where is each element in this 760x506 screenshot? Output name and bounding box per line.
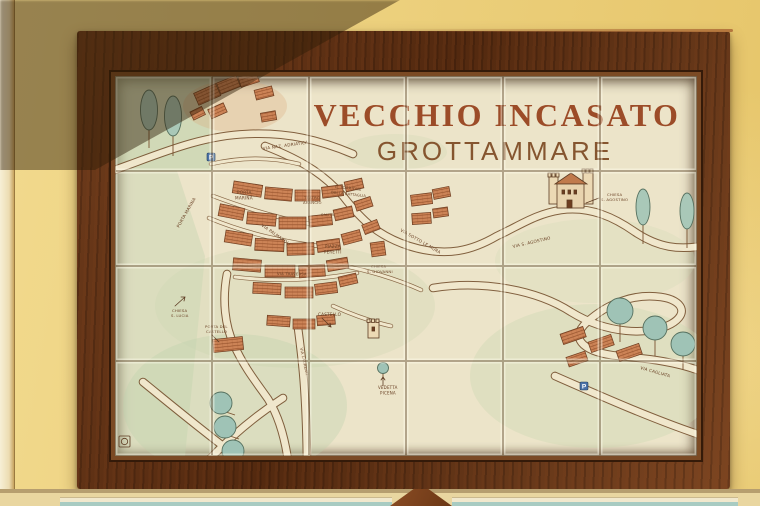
lower-display-right bbox=[452, 497, 738, 506]
frame-highlight-top bbox=[397, 29, 733, 32]
wooden-frame: VECCHIO INCASATO GROTTAMMARE VIA NAZ. AD… bbox=[77, 31, 730, 489]
tile-grid bbox=[115, 76, 697, 456]
frame-highlight-right bbox=[729, 37, 732, 483]
photo-of-tile-map: VECCHIO INCASATO GROTTAMMARE VIA NAZ. AD… bbox=[0, 0, 760, 506]
map-svg: VECCHIO INCASATO GROTTAMMARE VIA NAZ. AD… bbox=[115, 76, 697, 456]
lower-wall-strip bbox=[0, 489, 760, 506]
wall-pilaster bbox=[0, 0, 15, 506]
frame-cast-shadow bbox=[0, 489, 760, 493]
tile-panel-wrap: VECCHIO INCASATO GROTTAMMARE VIA NAZ. AD… bbox=[115, 76, 697, 456]
lower-display-left bbox=[60, 497, 392, 506]
tile-panel: VECCHIO INCASATO GROTTAMMARE VIA NAZ. AD… bbox=[115, 76, 697, 456]
